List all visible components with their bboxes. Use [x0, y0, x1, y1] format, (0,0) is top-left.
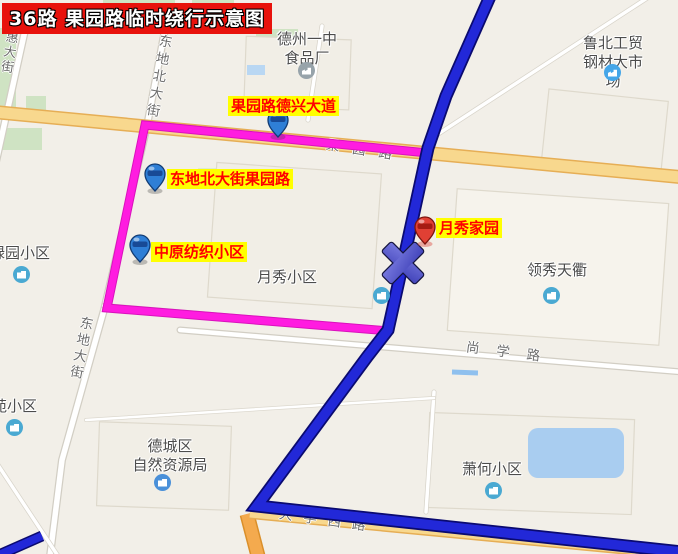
poi-label-yuan-xiaoqu: 苑小区 [0, 397, 37, 416]
residential-icon-yuexiu [373, 287, 390, 304]
poi-label-xiaohe-xiaoqu: 萧何小区 [462, 460, 522, 479]
highlight-label-guoyuan-dexing: 果园路德兴大道 [228, 96, 339, 116]
poi-label-layer: 德州一中 食品厂 鲁北工贸 钢材大市场 月秀小区 领秀天衢 绿园小区 苑小区 德… [0, 0, 678, 554]
highlight-label-zhongyuan-fangzhi: 中原纺织小区 [151, 242, 247, 262]
factory-icon-gray [298, 62, 315, 79]
poi-label-lubei-gongmao: 鲁北工贸 钢材大市场 [581, 34, 646, 90]
map-title-banner: 36路 果园路临时绕行示意图 [2, 3, 272, 34]
detour-map: 惠大街 东地北大街 东地大街 果园路 尚学路 大学西路 [0, 0, 678, 554]
residential-icon-lvyuan [13, 266, 30, 283]
poi-label-yuexiu-xiaoqu: 月秀小区 [257, 268, 317, 287]
poi-label-lingxiu-tianqu: 领秀天衢 [527, 261, 587, 280]
factory-icon-blue [604, 64, 621, 81]
poi-label-ziran-ziyuanju: 德城区 自然资源局 [132, 437, 207, 475]
residential-icon-yuan [6, 419, 23, 436]
residential-icon-lingxiu [543, 287, 560, 304]
residential-icon-xiaohe [485, 482, 502, 499]
highlight-label-yuexiu-jiayuan: 月秀家园 [436, 218, 502, 238]
poi-label-lvyuan-xiaoqu: 绿园小区 [0, 244, 50, 263]
government-icon [154, 474, 171, 491]
highlight-label-dongdibei-guoyuan: 东地北大街果园路 [167, 169, 293, 189]
